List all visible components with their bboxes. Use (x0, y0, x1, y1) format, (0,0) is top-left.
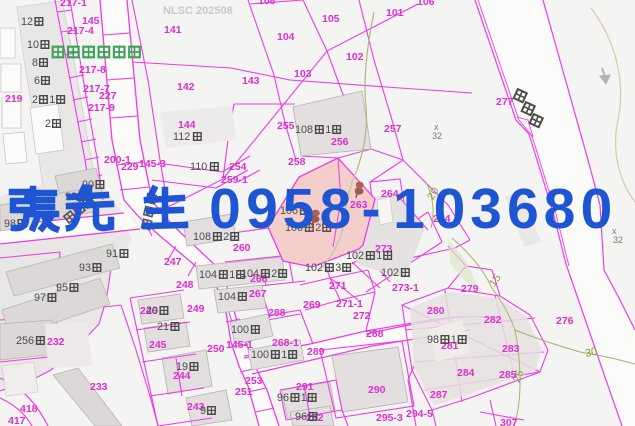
svg-text:290: 290 (368, 384, 386, 396)
svg-text:145-1: 145-1 (226, 339, 253, 351)
svg-text:418: 418 (20, 403, 38, 415)
svg-text:21: 21 (157, 321, 169, 333)
svg-text:288: 288 (366, 328, 384, 340)
svg-text:2: 2 (45, 118, 51, 130)
svg-text:271: 271 (329, 280, 347, 292)
svg-text:1: 1 (301, 392, 307, 404)
svg-text:5: 5 (283, 177, 315, 241)
svg-text:260: 260 (233, 242, 251, 254)
svg-text:104: 104 (218, 291, 236, 303)
svg-text:249: 249 (187, 303, 205, 315)
svg-text:3: 3 (470, 177, 502, 241)
svg-text:276: 276 (556, 315, 574, 327)
svg-text:106: 106 (417, 0, 435, 8)
svg-text:93: 93 (79, 262, 91, 274)
svg-text:257: 257 (384, 123, 402, 135)
svg-text:1: 1 (229, 269, 235, 281)
svg-text:8: 8 (544, 177, 576, 241)
svg-text:248: 248 (176, 279, 194, 291)
svg-text:100: 100 (231, 324, 249, 336)
svg-text:280: 280 (427, 305, 445, 317)
svg-text:233: 233 (90, 381, 108, 393)
svg-text:284: 284 (457, 367, 475, 379)
svg-text:32: 32 (432, 131, 442, 141)
svg-text:110: 110 (190, 161, 207, 173)
svg-text:417: 417 (8, 415, 26, 426)
svg-text:104: 104 (277, 31, 295, 43)
svg-text:283: 283 (502, 343, 520, 355)
svg-text:295-3: 295-3 (376, 412, 403, 424)
svg-text:250: 250 (207, 343, 225, 355)
svg-text:245: 245 (149, 339, 167, 351)
svg-text:32: 32 (613, 235, 623, 245)
svg-text:254: 254 (229, 161, 247, 173)
svg-text:142: 142 (177, 81, 195, 93)
svg-text:277: 277 (496, 96, 514, 108)
svg-text:104: 104 (199, 269, 217, 281)
svg-text:103: 103 (294, 68, 312, 80)
svg-text:112: 112 (173, 131, 190, 143)
svg-text:217-8: 217-8 (79, 64, 106, 76)
svg-text:227: 227 (99, 90, 117, 102)
svg-text:6: 6 (34, 75, 40, 87)
svg-text:268-1: 268-1 (272, 337, 299, 349)
svg-text:30: 30 (584, 346, 598, 360)
svg-text:10: 10 (27, 39, 39, 51)
svg-text:273-1: 273-1 (392, 282, 419, 294)
svg-text:247: 247 (164, 256, 182, 268)
svg-text:271-1: 271-1 (336, 298, 363, 310)
svg-text:289: 289 (307, 346, 325, 358)
svg-text:217-4: 217-4 (67, 25, 94, 37)
svg-text:2: 2 (271, 268, 277, 280)
svg-text:96: 96 (277, 392, 289, 404)
svg-text:288: 288 (268, 307, 286, 319)
svg-text:101: 101 (386, 7, 404, 19)
svg-text:108: 108 (295, 124, 313, 136)
svg-text:105: 105 (322, 13, 340, 25)
svg-text:91: 91 (106, 248, 118, 260)
svg-text:141: 141 (164, 24, 182, 36)
svg-text:6: 6 (507, 177, 539, 241)
svg-text:102: 102 (346, 250, 364, 262)
svg-text:282: 282 (484, 314, 502, 326)
svg-text:108: 108 (258, 0, 276, 7)
svg-text:232: 232 (47, 336, 65, 348)
svg-text:267: 267 (249, 288, 267, 300)
svg-text:9: 9 (246, 177, 278, 241)
svg-text:217-1: 217-1 (60, 0, 87, 9)
svg-text:102: 102 (346, 51, 364, 63)
svg-text:279: 279 (461, 283, 479, 295)
svg-text:285: 285 (499, 369, 517, 381)
svg-text:269: 269 (303, 299, 321, 311)
svg-text:256: 256 (331, 136, 349, 148)
svg-text:100: 100 (251, 349, 269, 361)
svg-text:294-5: 294-5 (406, 408, 433, 420)
svg-text:1: 1 (451, 334, 457, 346)
svg-text:1: 1 (376, 250, 382, 262)
svg-text:256: 256 (16, 335, 34, 347)
svg-text:287: 287 (430, 389, 448, 401)
svg-text:258: 258 (288, 156, 306, 168)
svg-text:1: 1 (325, 124, 331, 136)
svg-text:251: 251 (235, 386, 253, 398)
svg-text:3: 3 (335, 262, 341, 274)
svg-text:12: 12 (21, 16, 33, 28)
svg-text:95: 95 (56, 282, 68, 294)
svg-text:0: 0 (434, 177, 466, 241)
svg-text:9: 9 (200, 405, 206, 417)
svg-text:0: 0 (209, 177, 241, 241)
svg-text:255: 255 (277, 120, 295, 132)
svg-text:20: 20 (146, 305, 158, 317)
svg-text:NLSC 202508: NLSC 202508 (163, 5, 233, 17)
svg-text:102: 102 (305, 262, 323, 274)
svg-text:219: 219 (5, 93, 23, 105)
svg-text:229: 229 (121, 161, 139, 173)
svg-text:2: 2 (32, 94, 38, 106)
svg-text:145-3: 145-3 (139, 158, 166, 170)
svg-text:1: 1 (281, 349, 287, 361)
svg-text:98: 98 (427, 334, 439, 346)
svg-text:1: 1 (49, 94, 55, 106)
svg-text:104: 104 (241, 268, 259, 280)
svg-text:143: 143 (242, 75, 260, 87)
svg-text:272: 272 (353, 310, 371, 322)
svg-text:-: - (362, 177, 381, 241)
svg-text:307: 307 (500, 417, 518, 426)
svg-text:8: 8 (32, 57, 38, 69)
svg-text:144: 144 (178, 119, 196, 131)
svg-text:97: 97 (34, 292, 46, 304)
svg-text:8: 8 (320, 177, 352, 241)
svg-text:1: 1 (393, 177, 425, 241)
svg-text:96: 96 (295, 411, 307, 423)
svg-text:217-9: 217-9 (88, 102, 115, 114)
svg-text:102: 102 (381, 267, 399, 279)
svg-text:0: 0 (581, 177, 613, 241)
svg-text:19: 19 (176, 361, 188, 373)
